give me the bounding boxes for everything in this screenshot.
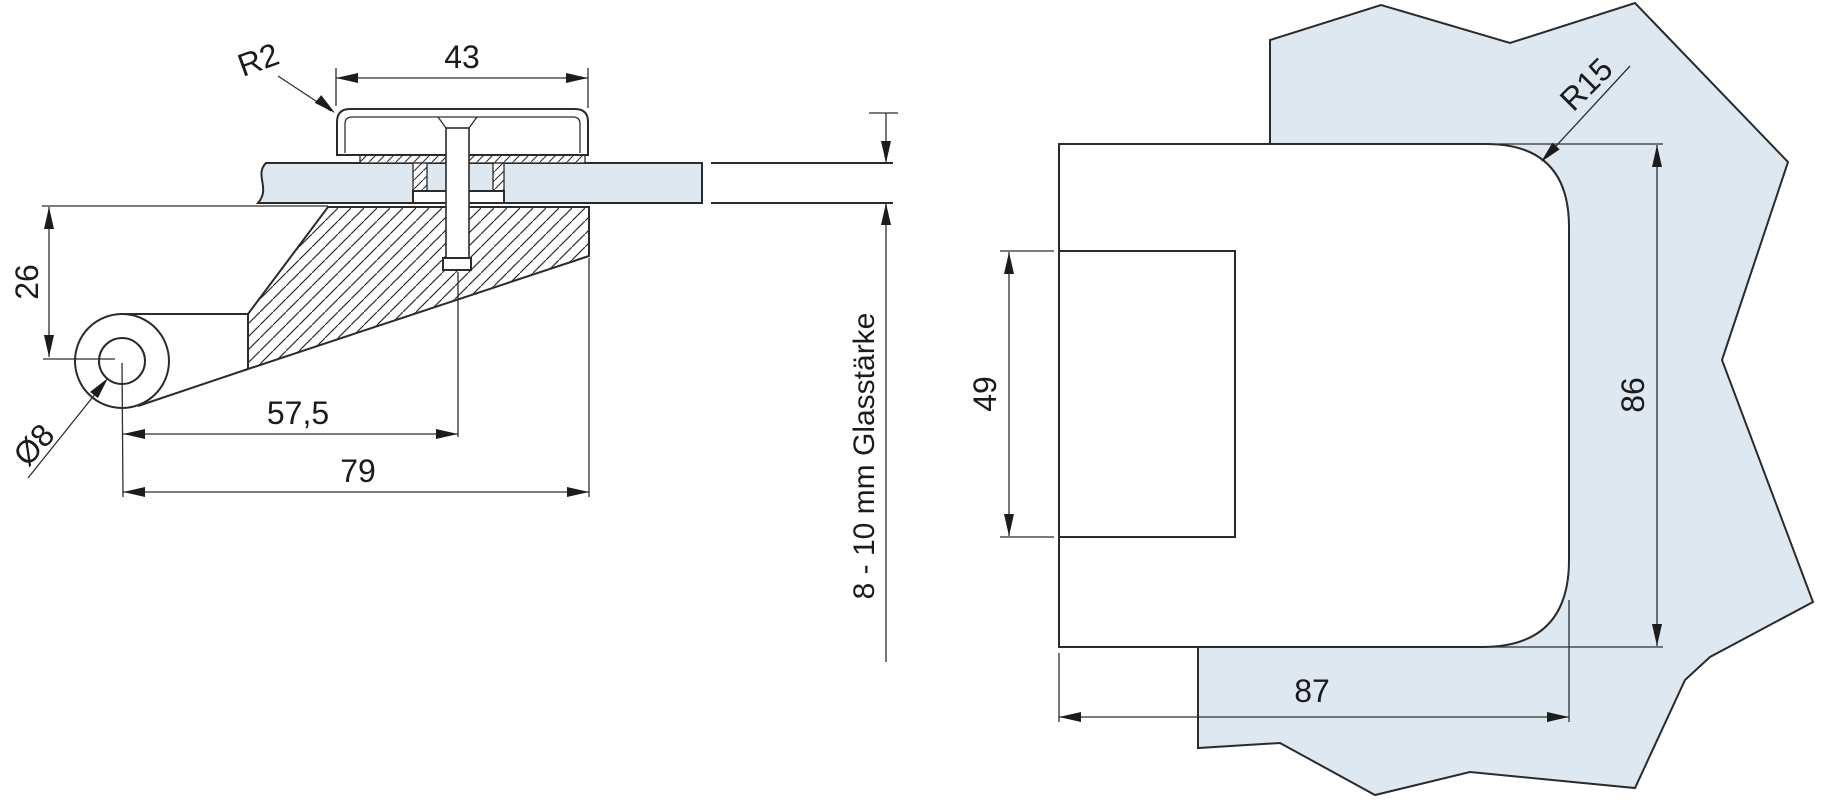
dim-cap-width-value: 43 xyxy=(444,39,480,75)
label-cap-radius-value: R2 xyxy=(233,36,284,84)
side-view: 43 R2 26 Ø8 57,5 xyxy=(6,36,898,662)
dim-glass-thickness-value: 8 - 10 mm Glasstärke xyxy=(848,313,881,600)
glass-pane-outline xyxy=(711,163,893,203)
dim-cap-width: 43 xyxy=(336,39,588,108)
hinge-body-front xyxy=(1059,144,1569,647)
label-pivot-hole: Ø8 xyxy=(6,378,108,478)
dim-pivot-to-screw-value: 57,5 xyxy=(267,395,329,431)
dim-plate-height: 49 xyxy=(967,251,1054,537)
label-pivot-hole-value: Ø8 xyxy=(6,417,61,473)
dim-plate-height-value: 49 xyxy=(967,376,1003,412)
dim-pivot-drop-value: 26 xyxy=(9,264,45,300)
screw-stem xyxy=(446,128,469,258)
front-view: 49 R15 86 87 xyxy=(967,3,1813,795)
gasket-strip xyxy=(360,155,585,163)
clamp-body-section xyxy=(248,207,589,369)
dim-pivot-to-screw: 57,5 xyxy=(123,395,458,439)
pivot-arm xyxy=(75,314,248,408)
label-cap-radius: R2 xyxy=(233,36,335,113)
dim-body-width-value: 87 xyxy=(1294,673,1330,709)
screw-foot xyxy=(443,258,471,270)
dim-glass-thickness: 8 - 10 mm Glasstärke xyxy=(848,113,898,662)
technical-drawing-page: 43 R2 26 Ø8 57,5 xyxy=(0,0,1826,800)
hinge-drawing-canvas: 43 R2 26 Ø8 57,5 xyxy=(0,0,1826,800)
dim-body-height-value: 86 xyxy=(1615,377,1651,413)
dim-pivot-to-edge-value: 79 xyxy=(340,453,376,489)
